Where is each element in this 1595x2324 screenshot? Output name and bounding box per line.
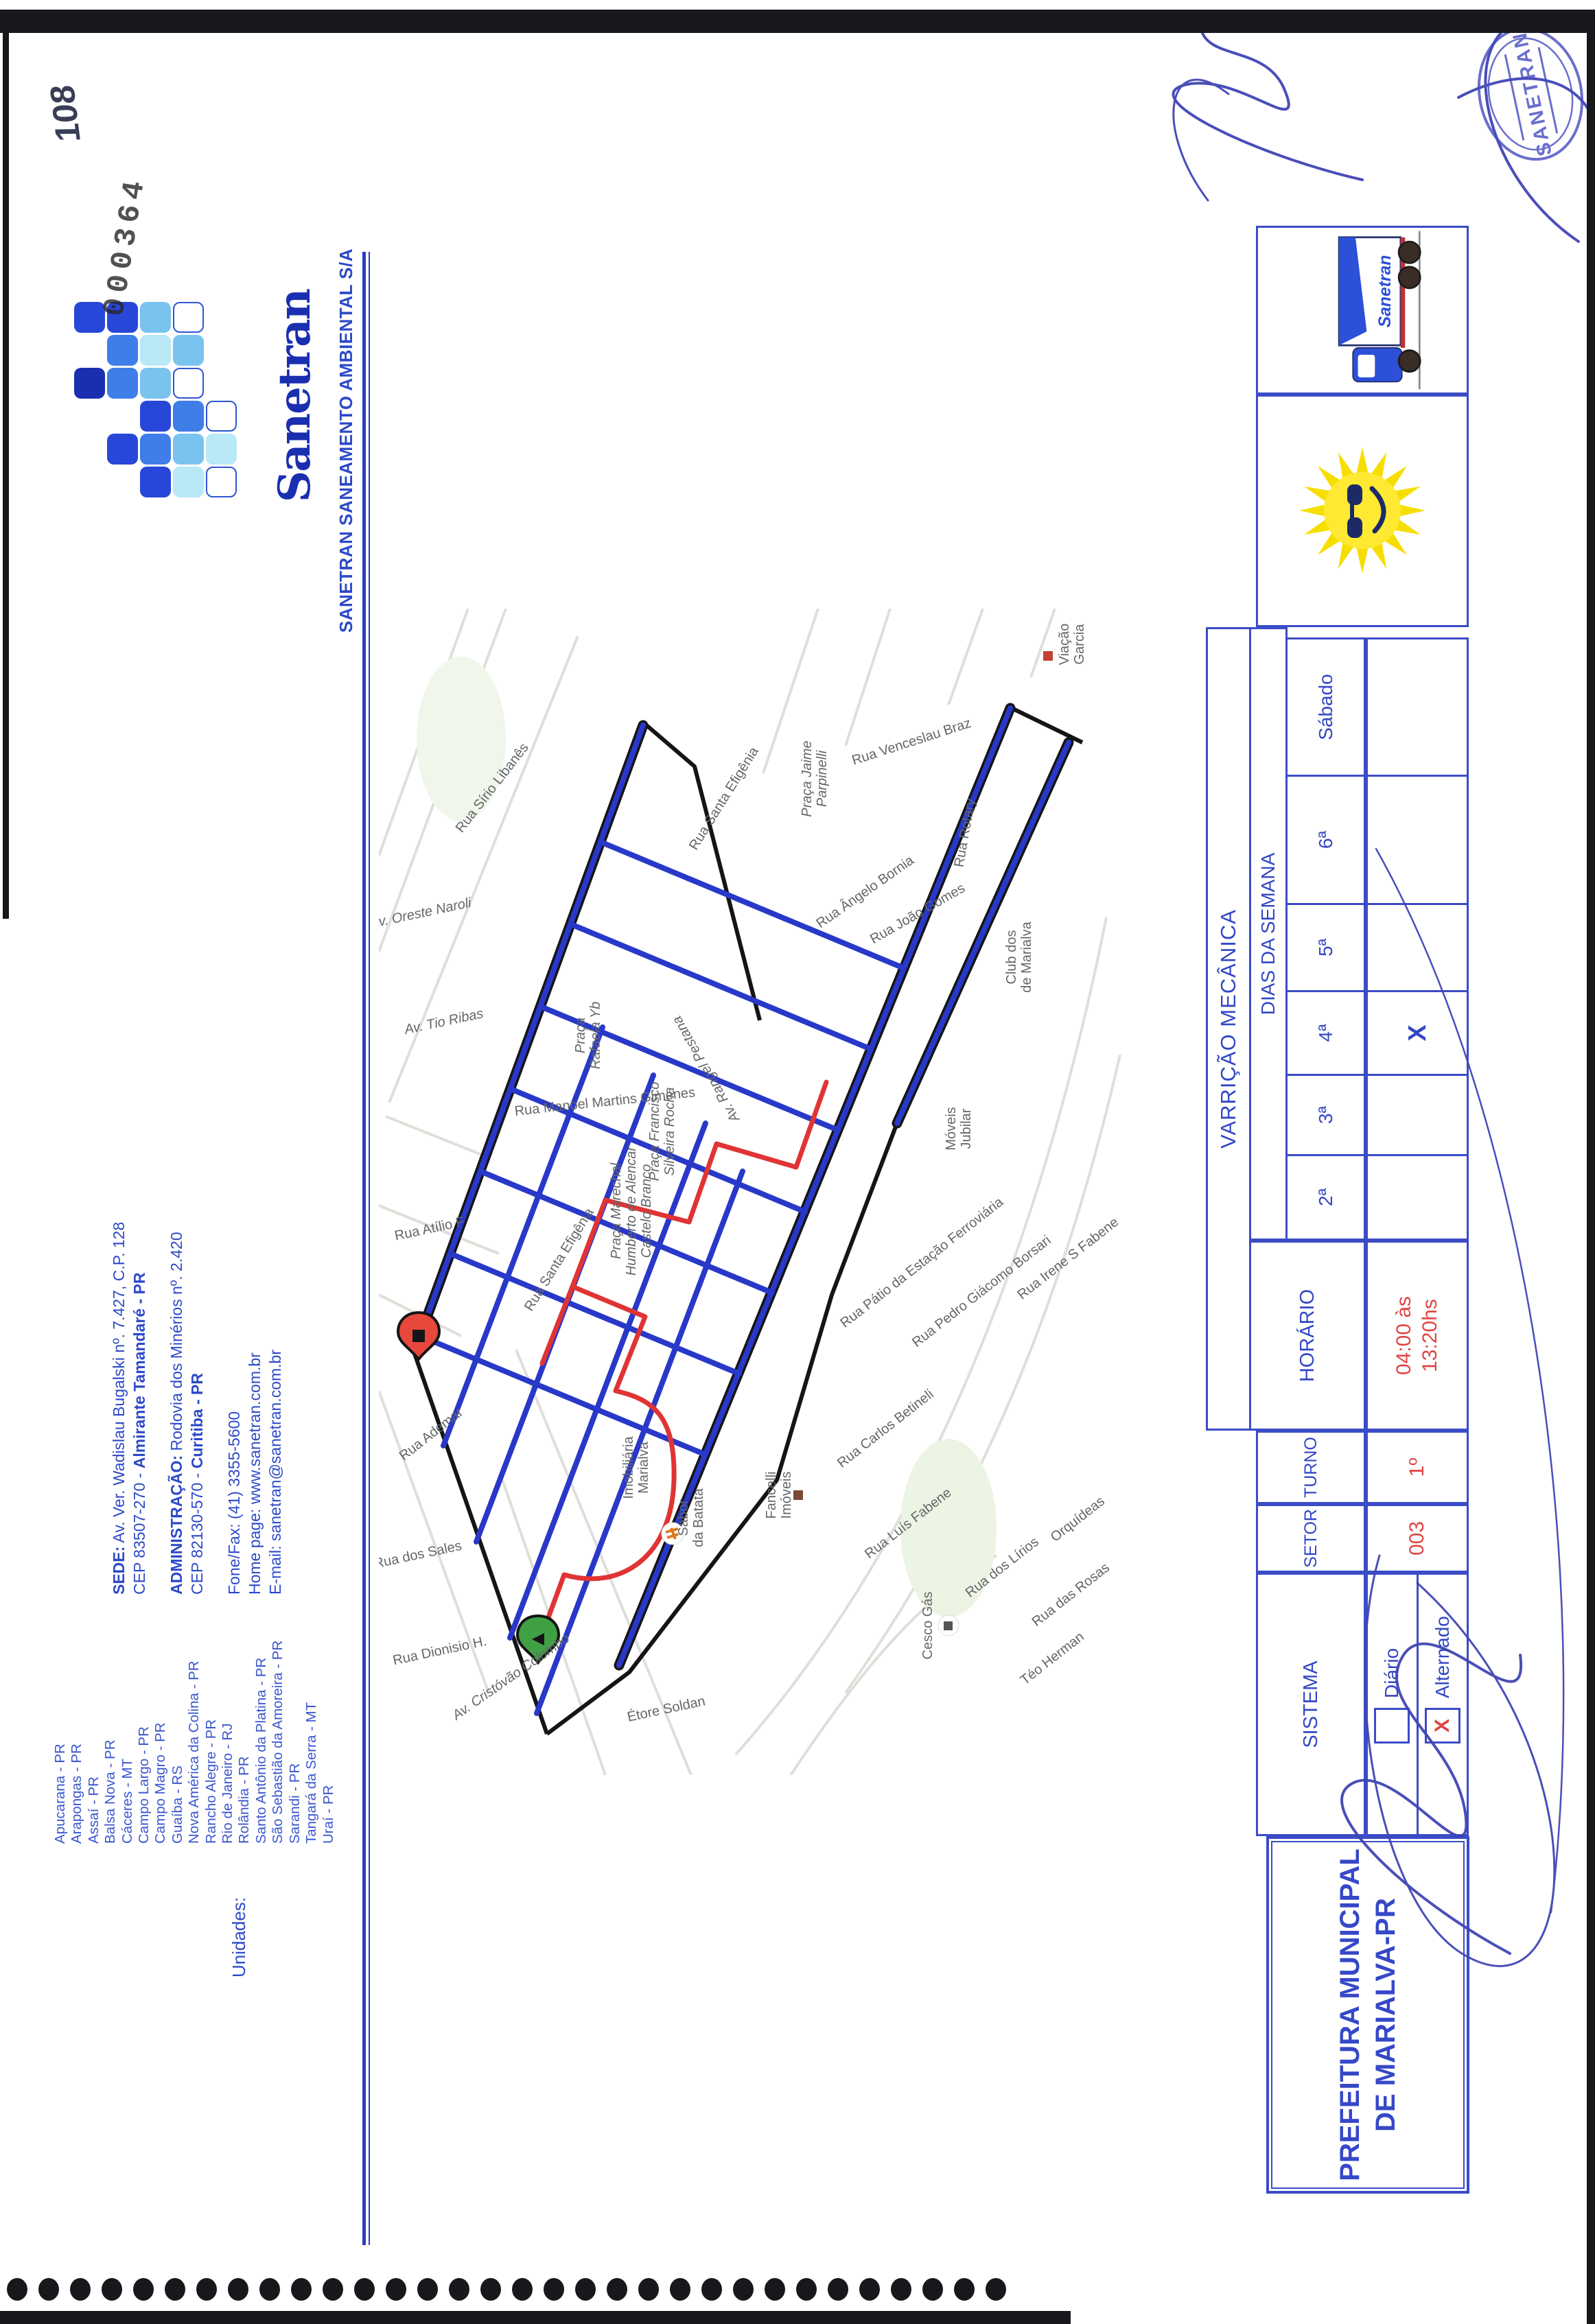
- admin-cep: CEP 82130-570 -: [188, 1473, 206, 1595]
- scan-artifact-bottom-band: [0, 2311, 1071, 2324]
- binding-hole: [575, 2278, 596, 2301]
- spacer: [150, 1222, 166, 1595]
- truck-wheel: [1399, 351, 1420, 372]
- binding-hole: [7, 2278, 27, 2301]
- logo-mosaic-cell: [107, 335, 138, 366]
- day-header-cell: 6ª: [1285, 775, 1366, 905]
- binding-hole: [102, 2278, 122, 2301]
- street-label: Étore Soldan: [626, 1693, 707, 1725]
- binding-hole: [638, 2278, 659, 2301]
- day-mark-cell: [1366, 1154, 1469, 1241]
- binding-hole: [291, 2278, 312, 2301]
- admin-line2: CEP 82130-570 - Curitiba - PR: [187, 1222, 207, 1595]
- street-label: Rua Ademar: [397, 1405, 466, 1464]
- street-label: ImobiliáriaMarialva: [621, 1436, 651, 1499]
- cesco-gas-marker: [944, 1621, 953, 1630]
- binding-hole: [986, 2278, 1006, 2301]
- sanetran-truck-icon: Sanetran: [1287, 228, 1438, 392]
- day-header-cell: Sábado: [1285, 637, 1366, 777]
- sanetran-logo-mosaic: [74, 302, 237, 497]
- alternado-label: Alternado: [1432, 1616, 1454, 1698]
- unit-item: Nova América da Colina - PR: [186, 1641, 202, 1844]
- street-label: Praça JaimeParpinelli: [800, 740, 830, 817]
- admin-label: ADMINISTRAÇÃO:: [167, 1455, 185, 1595]
- street-label: Cesco Gás: [920, 1592, 935, 1660]
- binding-holes-row: [7, 2278, 1006, 2301]
- logo-mosaic-cell: [173, 368, 204, 399]
- document-landscape-content: Unidades: Apucarana - PRArapongas - PRAs…: [0, 0, 1595, 2324]
- binding-hole: [386, 2278, 406, 2301]
- admin-address: Rodovia dos Minérios nº. 2.420: [167, 1232, 185, 1451]
- logo-mosaic-cell: [74, 434, 105, 465]
- setor-header: SETOR: [1256, 1504, 1366, 1573]
- spacer: [207, 1222, 224, 1595]
- days-title: DIAS DA SEMANA: [1249, 627, 1288, 1241]
- admin-city: Curitiba - PR: [188, 1373, 206, 1468]
- unit-item: São Sebastião da Amoreira - PR: [270, 1641, 286, 1844]
- binding-hole: [449, 2278, 469, 2301]
- logo-mosaic-cell: [74, 401, 105, 432]
- homepage-line: Home page: www.sanetran.com.br: [244, 1222, 265, 1595]
- diario-checkbox: [1374, 1708, 1410, 1744]
- day-header-cell: 5ª: [1285, 903, 1366, 992]
- street-label: Orquídeas: [1048, 1494, 1108, 1545]
- logo-mosaic-cell: [206, 368, 237, 399]
- map-end-pin-red: [398, 1313, 439, 1359]
- unit-item: Rolândia - PR: [236, 1641, 253, 1844]
- email-line: E-mail: sanetran@sanetran.com.br: [265, 1222, 286, 1595]
- protocol-stamp-number: 000364: [97, 174, 154, 319]
- diario-row: Diário: [1368, 1575, 1417, 1834]
- binding-hole: [544, 2278, 564, 2301]
- day-marks-row: X: [1366, 637, 1469, 1241]
- sede-label: SEDE:: [110, 1547, 128, 1595]
- client-name-line2: DE MARIALVA-PR: [1368, 1898, 1404, 2132]
- logo-mosaic-cell: [107, 401, 138, 432]
- street-label: Rua Dionisio H.: [392, 1634, 488, 1668]
- logo-mosaic-cell: [173, 302, 204, 333]
- street-label: Rua dos Sales: [379, 1538, 463, 1572]
- sistema-header: SISTEMA: [1256, 1573, 1366, 1836]
- logo-mosaic-cell: [74, 467, 105, 497]
- sun-cell: [1256, 395, 1469, 627]
- logo-mosaic-cell: [173, 335, 204, 366]
- street-label: ViaçãoGarcia: [1057, 624, 1087, 666]
- truck-wheel: [1399, 267, 1420, 288]
- unit-item: Assaí - PR: [86, 1641, 102, 1844]
- logo-mosaic-cell: [140, 467, 171, 497]
- horario-header: HORÁRIO: [1249, 1241, 1366, 1431]
- sede-city: Almirante Tamandaré - PR: [130, 1272, 148, 1468]
- route-map: Rua Sírio LibanêsAv. Oreste NaroliAv. Ti…: [379, 609, 1151, 1775]
- client-cell: PREFEITURA MUNICIPAL DE MARIALVA-PR: [1266, 1836, 1469, 2194]
- binding-hole: [607, 2278, 627, 2301]
- logo-mosaic-cell: [206, 467, 237, 497]
- scan-artifact-left-line: [3, 10, 9, 919]
- street-label: Rua Santa Efigênia: [686, 744, 762, 853]
- horario-value-line1: 04:00 às: [1391, 1296, 1417, 1375]
- logo-mosaic-cell: [140, 434, 171, 465]
- street-label: Rua Venceslau Braz: [850, 716, 973, 768]
- diario-label: Diário: [1381, 1648, 1403, 1698]
- binding-hole: [259, 2278, 280, 2301]
- round-stamp-text: SANETRAN: [1509, 30, 1557, 159]
- day-mark-cell: [1366, 637, 1469, 777]
- binding-hole: [954, 2278, 975, 2301]
- street-label: Téo Herman: [1018, 1629, 1087, 1688]
- truck-cab-window: [1358, 355, 1375, 377]
- binding-hole: [354, 2278, 375, 2301]
- unit-item: Cáceres - MT: [119, 1641, 136, 1844]
- contact-block: SEDE: Av. Ver. Wadislau Bugalski nº. 7.4…: [108, 1222, 286, 1595]
- horario-value-line2: 13:20hs: [1417, 1299, 1443, 1372]
- binding-hole: [701, 2278, 722, 2301]
- logo-mosaic-cell: [107, 467, 138, 497]
- day-mark-cell: X: [1366, 990, 1469, 1076]
- logo-mosaic-cell: [173, 401, 204, 432]
- street-label: Rua das Rosas: [1029, 1560, 1113, 1630]
- scanned-document-page: Unidades: Apucarana - PRArapongas - PRAs…: [0, 0, 1595, 2324]
- signature-over-stamp: [1458, 19, 1595, 242]
- logo-mosaic-cell: [74, 335, 105, 366]
- sede-line1: SEDE: Av. Ver. Wadislau Bugalski nº. 7.4…: [108, 1222, 129, 1595]
- unit-item: Balsa Nova - PR: [102, 1641, 119, 1844]
- binding-hole: [670, 2278, 690, 2301]
- viacao-garcia-marker: [1043, 651, 1053, 661]
- day-header-cell: 2ª: [1285, 1154, 1366, 1241]
- unit-item: Rio de Janeiro - RJ: [220, 1641, 236, 1844]
- fancelli-marker: [793, 1490, 803, 1500]
- truck-brand-text: Sanetran: [1376, 255, 1395, 328]
- client-name-line1: PREFEITURA MUNICIPAL: [1332, 1848, 1368, 2181]
- street-label: Club dosde Marialva: [1004, 921, 1034, 992]
- day-mark-cell: [1366, 903, 1469, 992]
- sun-face: [1324, 473, 1401, 550]
- binding-hole: [796, 2278, 817, 2301]
- binding-hole: [133, 2278, 154, 2301]
- logo-mosaic-cell: [206, 434, 237, 465]
- sanetran-round-stamp: SANETRAN: [1467, 19, 1594, 169]
- logo-mosaic-cell: [74, 368, 105, 399]
- turno-header: TURNO: [1256, 1431, 1366, 1504]
- binding-hole: [480, 2278, 501, 2301]
- phone-line: Fone/Fax: (41) 3355-5600: [224, 1222, 244, 1595]
- street-label: Av. Oreste Naroli: [379, 895, 473, 932]
- logo-mosaic-cell: [206, 401, 237, 432]
- unit-item: Sarandi - PR: [287, 1641, 303, 1844]
- sanetran-logo-tagline: SANETRAN SANEAMENTO AMBIENTAL S/A: [336, 248, 357, 691]
- unit-item: Uraí - PR: [321, 1641, 337, 1844]
- unit-item: Arapongas - PR: [69, 1641, 85, 1844]
- day-mark-cell: [1366, 775, 1469, 905]
- logo-mosaic-cell: [140, 302, 171, 333]
- sede-address: Av. Ver. Wadislau Bugalski nº. 7.427, C.…: [110, 1222, 128, 1543]
- admin-line1: ADMINISTRAÇÃO: Rodovia dos Minérios nº. …: [166, 1222, 187, 1595]
- logo-mosaic-cell: [206, 335, 237, 366]
- letterhead-rule: [362, 252, 370, 2245]
- unit-item: Tangará da Serra - MT: [303, 1641, 320, 1844]
- binding-hole: [70, 2278, 91, 2301]
- unit-item: Campo Magro - PR: [152, 1641, 169, 1844]
- truck-cell: Sanetran: [1256, 226, 1469, 395]
- unit-item: Campo Largo - PR: [136, 1641, 152, 1844]
- day-mark-cell: [1366, 1074, 1469, 1156]
- street-label: MóveisJubilar: [944, 1107, 974, 1150]
- binding-hole: [733, 2278, 754, 2301]
- service-title: VARRIÇÃO MECÂNICA: [1206, 627, 1251, 1431]
- map-red-route: [541, 1082, 826, 1638]
- unit-item: Apucarana - PR: [52, 1641, 69, 1844]
- logo-mosaic-cell: [107, 368, 138, 399]
- unit-item: Guaíba - RS: [170, 1641, 186, 1844]
- day-headers-row: 2ª3ª4ª5ª6ªSábado: [1285, 637, 1366, 1241]
- binding-hole: [765, 2278, 785, 2301]
- truck-wheel: [1399, 242, 1420, 263]
- logo-mosaic-cell: [173, 467, 204, 497]
- binding-hole: [196, 2278, 217, 2301]
- sanetran-logo-name: Sanetran: [269, 272, 321, 519]
- sede-line2: CEP 83507-270 - Almirante Tamandaré - PR: [129, 1222, 150, 1595]
- logo-mosaic-cell: [206, 302, 237, 333]
- day-header-cell: 3ª: [1285, 1074, 1366, 1156]
- setor-value: 003: [1366, 1504, 1469, 1573]
- binding-hole: [828, 2278, 848, 2301]
- street-label: Av. Tio Ribas: [402, 1006, 485, 1037]
- street-label: Av. Rangel Pestana: [670, 1013, 743, 1125]
- street-label: FancelliImóveis: [764, 1472, 794, 1519]
- signature-right: [1174, 29, 1362, 200]
- logo-mosaic-cell: [173, 434, 204, 465]
- binding-hole: [323, 2278, 343, 2301]
- binding-hole: [512, 2278, 533, 2301]
- sun-drawing: [1290, 439, 1434, 583]
- handwritten-page-number: 108: [42, 84, 89, 142]
- units-label: Unidades:: [229, 1897, 250, 1977]
- binding-hole: [38, 2278, 59, 2301]
- street-label: PraçaRafaela Yb: [573, 1002, 603, 1070]
- alternado-row: X Alternado: [1417, 1575, 1467, 1834]
- logo-mosaic-cell: [140, 401, 171, 432]
- alternado-checkbox: X: [1425, 1708, 1460, 1744]
- sede-cep: CEP 83507-270 -: [130, 1473, 148, 1595]
- day-header-cell: 4ª: [1285, 990, 1366, 1076]
- binding-hole: [922, 2278, 943, 2301]
- turno-value: 1º: [1366, 1431, 1469, 1504]
- scan-artifact-right-line: [1587, 10, 1595, 2324]
- street-label: Praça MarechalHumberto de AlencarCastelo…: [609, 1146, 654, 1276]
- sistema-value-cell: Diário X Alternado: [1366, 1573, 1469, 1836]
- scan-artifact-top-band: [0, 10, 1595, 33]
- binding-hole: [859, 2278, 880, 2301]
- logo-mosaic-cell: [107, 434, 138, 465]
- logo-mosaic-cell: [140, 368, 171, 399]
- logo-mosaic-cell: [140, 335, 171, 366]
- unit-item: Rancho Alegre - PR: [203, 1641, 220, 1844]
- binding-hole: [417, 2278, 438, 2301]
- binding-hole: [228, 2278, 248, 2301]
- binding-hole: [891, 2278, 911, 2301]
- unit-item: Santo Antônio da Platina - PR: [253, 1641, 270, 1844]
- horario-value: 04:00 às 13:20hs: [1366, 1241, 1469, 1431]
- binding-hole: [165, 2278, 185, 2301]
- units-list: Apucarana - PRArapongas - PRAssaí - PRBa…: [52, 1641, 337, 1844]
